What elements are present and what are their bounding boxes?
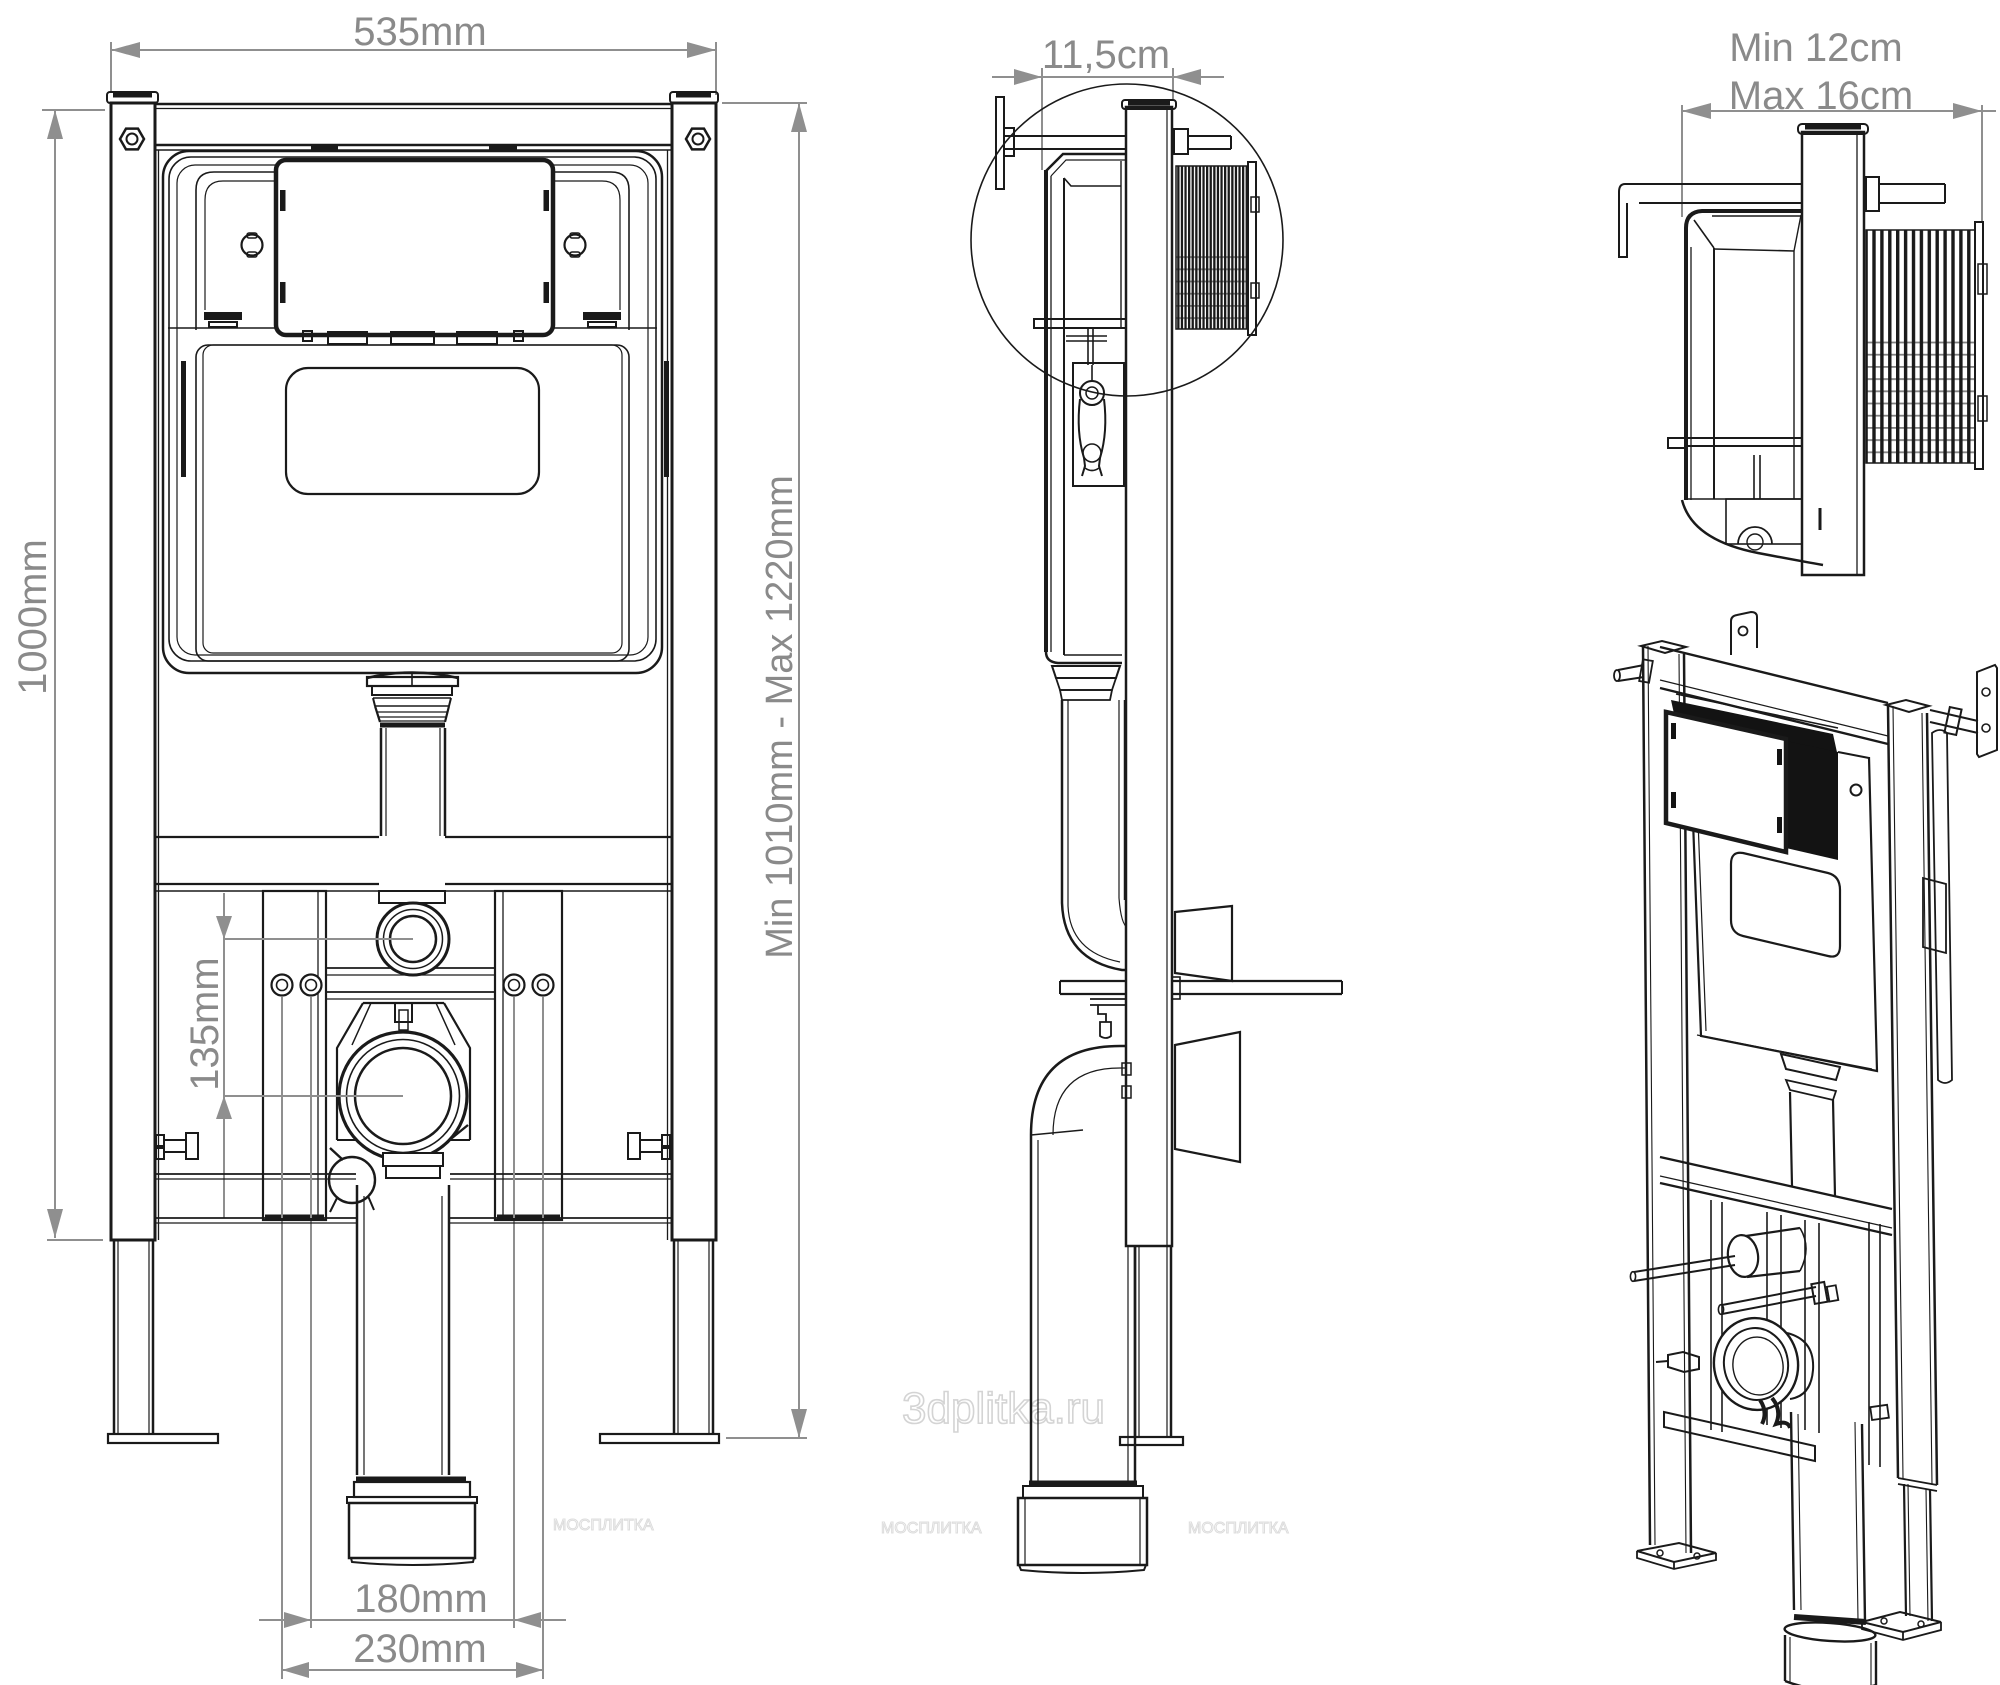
svg-text:535mm: 535mm xyxy=(353,10,486,54)
svg-text:Max 16cm: Max 16cm xyxy=(1729,74,1914,118)
svg-text:135mm: 135mm xyxy=(183,957,227,1090)
svg-text:230mm: 230mm xyxy=(353,1627,486,1671)
svg-text:3dplitka.ru: 3dplitka.ru xyxy=(902,1384,1105,1433)
svg-text:МОСПЛИТКА: МОСПЛИТКА xyxy=(881,1520,982,1537)
svg-text:1000mm: 1000mm xyxy=(11,539,55,695)
svg-text:МОСПЛИТКА: МОСПЛИТКА xyxy=(1188,1520,1289,1537)
svg-text:180mm: 180mm xyxy=(354,1577,487,1621)
svg-text:Min 12cm: Min 12cm xyxy=(1729,26,1902,70)
svg-text:11,5cm: 11,5cm xyxy=(1042,33,1170,77)
svg-text:Min 1010mm - Max 1220mm: Min 1010mm - Max 1220mm xyxy=(759,475,801,959)
svg-text:МОСПЛИТКА: МОСПЛИТКА xyxy=(553,1517,654,1534)
